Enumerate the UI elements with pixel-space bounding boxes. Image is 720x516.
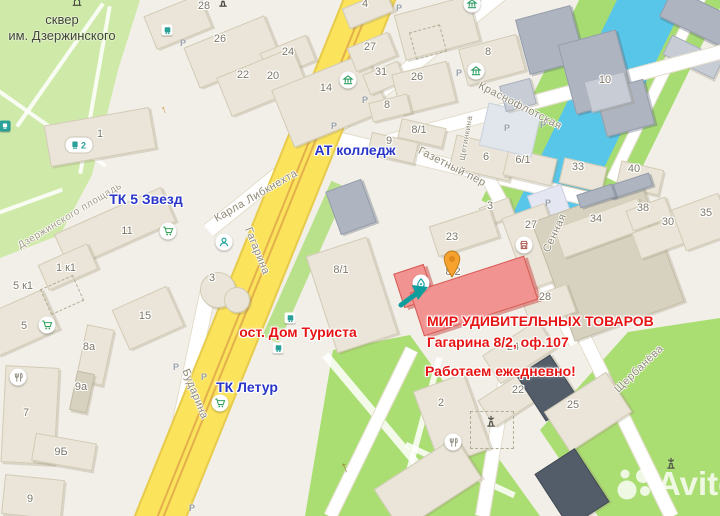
building-number: 1 к1	[56, 262, 76, 274]
building-number: 28	[198, 0, 210, 12]
building-number: 8	[384, 99, 390, 111]
parking-marker: P	[189, 503, 195, 513]
building-number: 22	[512, 384, 524, 396]
restaurant-icon	[10, 369, 27, 386]
building-shape	[429, 207, 500, 257]
building-number: 14	[320, 82, 332, 94]
annotation-shop-hours: Работаем ежедневно!	[425, 363, 576, 379]
annotation-bus-stop: ост. Дом Туриста	[239, 324, 357, 340]
building-number: 9Б	[54, 446, 67, 458]
building-number: 28	[539, 291, 551, 303]
building-number: 8/1	[333, 264, 348, 276]
bus-stop-icon	[285, 313, 296, 324]
building-number: 34	[590, 213, 602, 225]
park-label-line1: сквер	[0, 12, 132, 28]
building-number: 4	[362, 0, 368, 10]
building-shape	[224, 287, 250, 313]
building-number: 27	[525, 219, 537, 231]
avito-watermark-text: Avito	[657, 465, 720, 503]
building-number: 5	[21, 320, 27, 332]
annotation-tk-5-zvezd: ТК 5 Звезд	[109, 191, 183, 207]
parking-marker: P	[396, 3, 402, 13]
monument-icon	[485, 415, 498, 433]
park-label: сквер им. Дзержинского	[0, 12, 132, 44]
annotation-tk-letur: ТК Летур	[216, 379, 278, 395]
building-number: 30	[662, 216, 674, 228]
shopping-cart-icon	[212, 395, 229, 412]
building-number: 24	[282, 46, 294, 58]
avito-watermark: Avito	[617, 465, 720, 503]
building-number: 11	[121, 225, 132, 237]
building-number: 35	[700, 207, 712, 219]
annotation-shop-title: МИР УДИВИТЕЛЬНЫХ ТОВАРОВ	[427, 313, 654, 329]
parking-marker: P	[504, 123, 510, 133]
building-number: 6/1	[515, 154, 530, 166]
bank-icon	[340, 72, 357, 89]
transit-icon	[0, 121, 11, 132]
building-number: 8а	[83, 341, 95, 353]
building-number: 10	[599, 74, 611, 86]
annotation-at-college: АТ колледж	[314, 142, 395, 158]
pointer-arrow-icon	[398, 284, 430, 313]
road-arrow: ↑	[159, 103, 169, 116]
parking-marker: P	[201, 372, 207, 382]
store-icon	[516, 237, 533, 254]
bus-stop-icon	[162, 25, 173, 36]
church-icon	[71, 0, 83, 12]
building-number: 8	[485, 46, 491, 58]
tram-route-badge: 2	[65, 137, 94, 154]
bus-stop-icon	[273, 343, 284, 354]
avito-logo-icon	[617, 465, 653, 503]
building-number: 27	[364, 41, 376, 53]
monument-icon	[217, 0, 230, 13]
building-number: 6	[483, 151, 489, 163]
annotation-shop-address: Гагарина 8/2, оф.107	[427, 334, 569, 350]
parking-marker: P	[173, 362, 179, 372]
building-number: 20	[267, 70, 279, 82]
building-number: 33	[572, 161, 584, 173]
tram-route-number: 2	[81, 140, 86, 150]
building-number: 31	[375, 66, 387, 78]
building-number: 2	[438, 397, 444, 409]
building-number: 7	[23, 407, 29, 419]
building-number: 23	[446, 231, 458, 243]
building-number: 1	[97, 128, 103, 140]
building-number: 9а	[75, 381, 87, 393]
building-number: 3	[209, 272, 215, 284]
building-number: 38	[637, 202, 649, 214]
building-number: 9	[27, 493, 33, 505]
parking-marker: P	[545, 198, 551, 208]
parking-marker: P	[456, 68, 462, 78]
location-pin-icon	[442, 249, 463, 283]
beauty-icon	[216, 234, 233, 251]
parking-marker: P	[362, 95, 368, 105]
building-number: 5 к1	[13, 280, 33, 292]
bank-icon	[468, 63, 485, 80]
park-label-line2: им. Дзержинского	[0, 28, 132, 44]
building-number: 26	[411, 71, 423, 83]
building-number: 8/1	[411, 124, 426, 136]
building-number: 40	[628, 163, 640, 175]
parking-marker: P	[180, 38, 186, 48]
restaurant-icon	[445, 434, 462, 451]
building-number: 22	[237, 69, 249, 81]
building-number: 26	[214, 33, 226, 45]
shopping-cart-icon	[39, 317, 56, 334]
building-number: 3	[487, 200, 493, 212]
building-number: 25	[567, 399, 579, 411]
parking-marker: P	[331, 121, 337, 131]
building-number: 15	[139, 310, 151, 322]
tram-icon	[72, 141, 79, 150]
shopping-cart-icon	[160, 223, 177, 240]
map-canvas[interactable]: ↑ ↑	[0, 0, 720, 516]
